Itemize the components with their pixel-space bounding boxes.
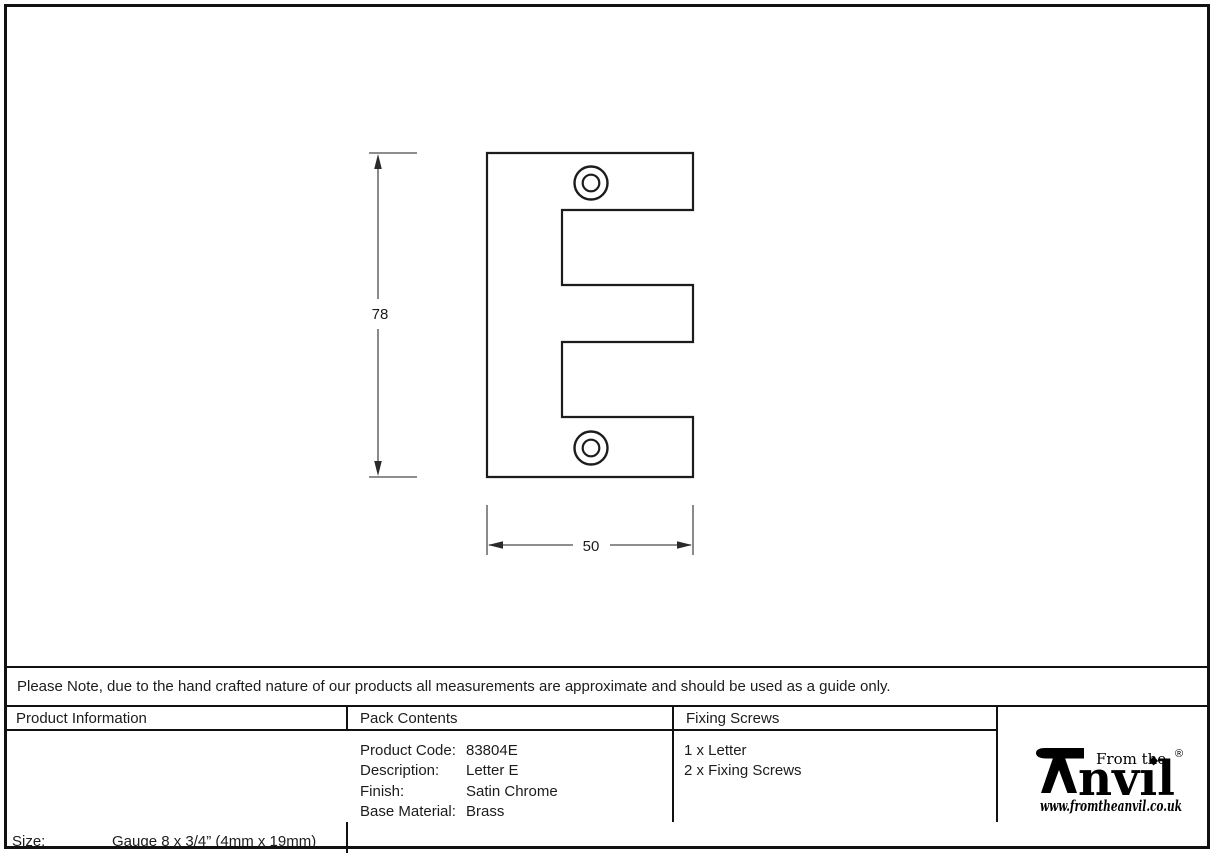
registered-trademark-symbol: ®: [1175, 748, 1183, 760]
letter-e-outline: [487, 153, 693, 477]
base-material-value: Brass: [466, 803, 504, 820]
measurement-note-text: Please Note, due to the hand crafted nat…: [17, 678, 891, 695]
width-dimension-label: 50: [583, 538, 600, 555]
measurement-note: Please Note, due to the hand crafted nat…: [4, 666, 1210, 707]
product-information-cell: Product Code: 83804E Description: Letter…: [348, 731, 674, 822]
logo-website-text: www.fromtheanvil.co.uk: [1040, 798, 1182, 815]
product-code-value: 83804E: [466, 742, 518, 759]
fixing-screws-cell: Size: Gauge 8 x 3/4” (4mm x 19mm) Type: …: [4, 822, 348, 853]
screw-size-value: Gauge 8 x 3/4” (4mm x 19mm): [112, 833, 316, 850]
fixing-screws-header: Fixing Screws: [674, 707, 998, 731]
spec-sheet: 78 50 Please Note, due to the hand craft…: [0, 0, 1214, 853]
product-code-row: Product Code: 83804E: [348, 740, 672, 761]
product-information-header: Product Information: [4, 707, 348, 731]
product-code-label: Product Code:: [360, 742, 466, 759]
screw-size-row: Size: Gauge 8 x 3/4” (4mm x 19mm): [4, 831, 346, 852]
logo-i-dot-diamond: ◆: [1149, 753, 1159, 767]
pack-item: 1 x Letter: [674, 740, 996, 761]
finish-value: Satin Chrome: [466, 783, 558, 800]
description-value: Letter E: [466, 762, 519, 779]
spec-table: Product Information Pack Contents Fixing…: [4, 707, 1210, 847]
finish-row: Finish: Satin Chrome: [348, 781, 672, 802]
logo-header-spacer: [4, 731, 348, 822]
base-material-row: Base Material: Brass: [348, 802, 672, 823]
finish-label: Finish:: [360, 783, 466, 800]
height-dimension-label: 78: [372, 306, 389, 323]
screw-size-label: Size:: [12, 833, 112, 850]
from-the-anvil-logo: nvıl From the ◆ ® www.fromtheanvil.co.uk: [998, 707, 1210, 847]
pack-contents-header: Pack Contents: [348, 707, 674, 731]
brand-logo-cell: nvıl From the ◆ ® www.fromtheanvil.co.uk: [998, 707, 1210, 822]
pack-item: 2 x Fixing Screws: [674, 761, 996, 782]
technical-drawing: 78 50: [0, 0, 1214, 668]
anvil-icon: [1036, 748, 1084, 793]
base-material-label: Base Material:: [360, 803, 466, 820]
pack-contents-cell: 1 x Letter 2 x Fixing Screws: [674, 731, 998, 822]
description-label: Description:: [360, 762, 466, 779]
description-row: Description: Letter E: [348, 761, 672, 782]
